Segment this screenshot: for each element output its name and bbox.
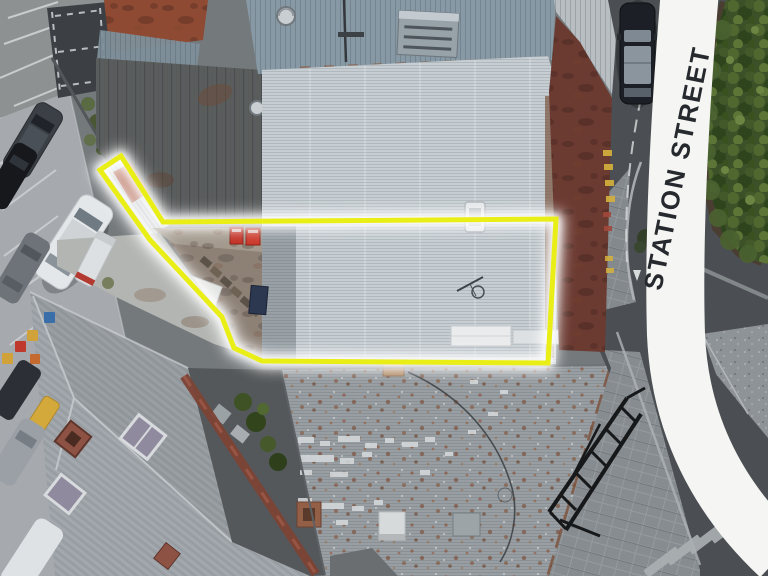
rust-patch [146,172,174,188]
dirt-patch [181,316,209,328]
main-roof-corrugation [262,56,558,364]
aerial-photo: STATION STREET [0,0,768,576]
shrub [102,277,114,289]
gray-vent-box [453,513,480,536]
solar-panel [249,285,268,314]
brick-chimney [297,502,321,527]
white-roof-box [379,512,405,540]
main-roof [262,56,559,364]
rooftop-vent-box [397,10,459,57]
aerial-photo-canvas: STATION STREET [0,0,768,576]
dirt-patch [134,288,166,302]
whirlybird-vent [250,101,264,115]
whirlybird-vent [277,7,295,25]
flue-bracket [338,32,364,37]
